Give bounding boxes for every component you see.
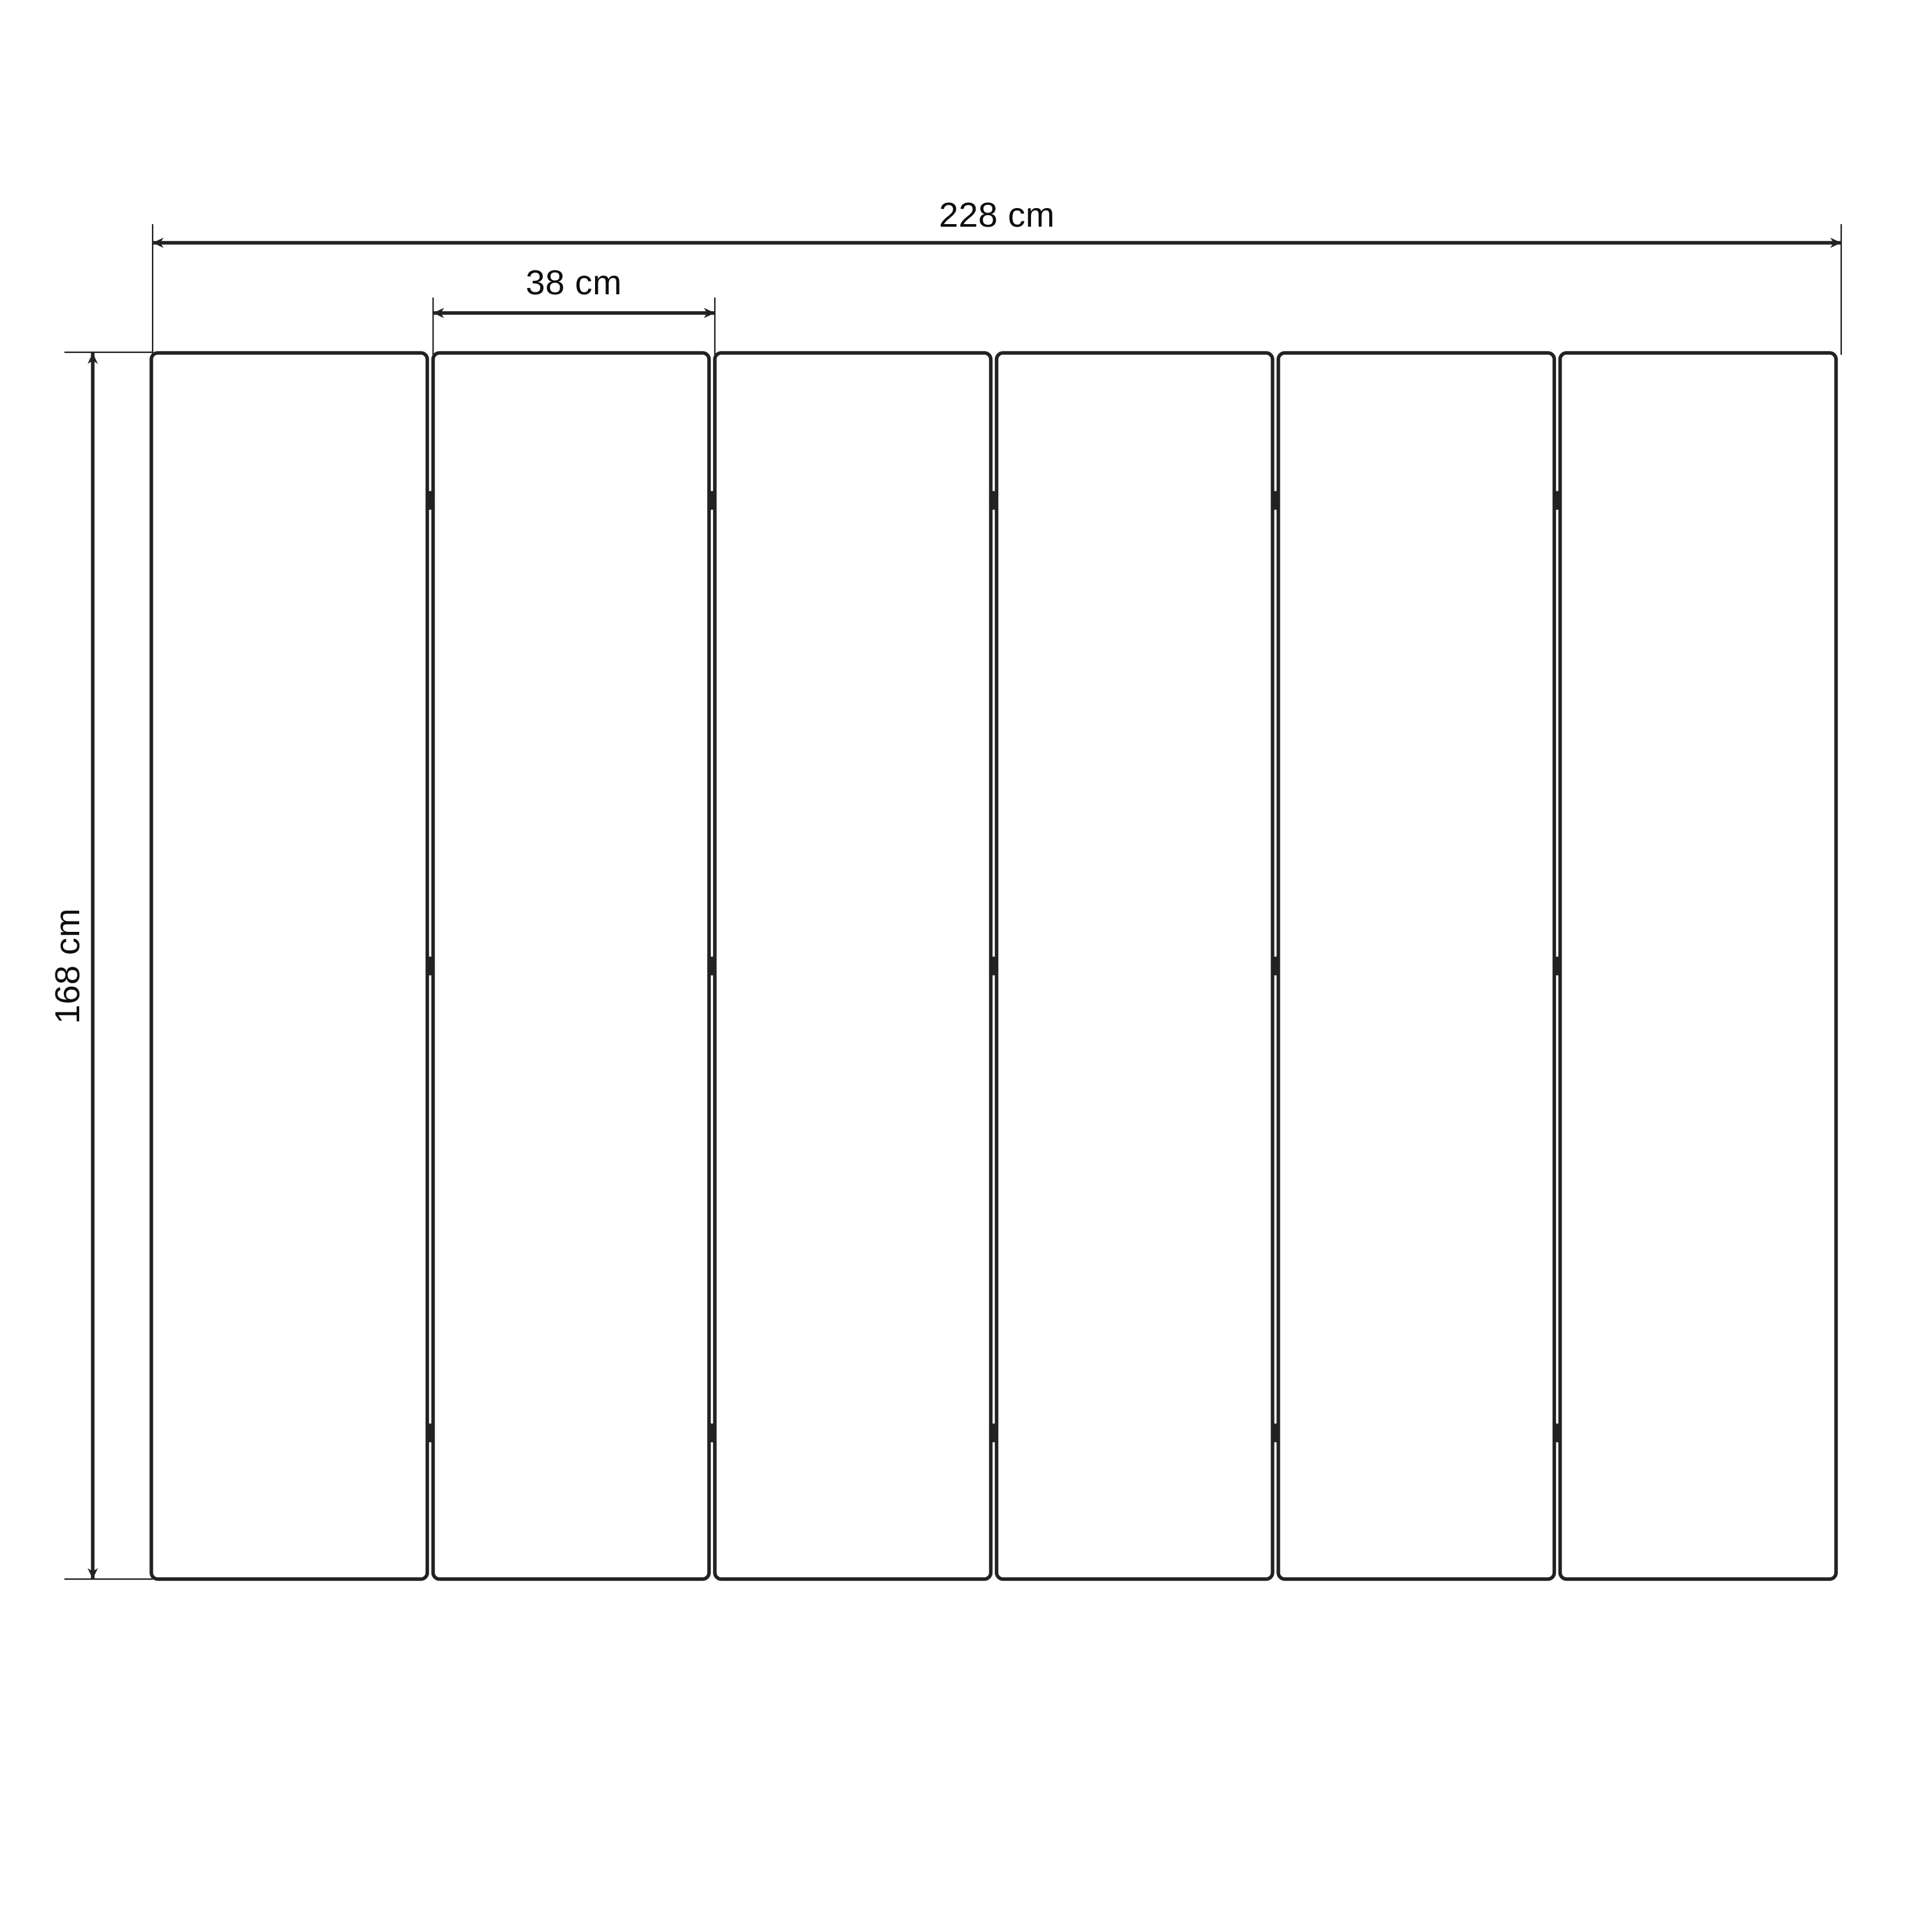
panel — [715, 353, 991, 1579]
panel — [151, 353, 428, 1579]
total-width-label: 228 cm — [939, 196, 1055, 234]
hinge — [1271, 957, 1280, 976]
hinge — [1553, 957, 1562, 976]
hinge — [990, 491, 998, 510]
hinge — [1271, 491, 1280, 510]
hinge — [426, 491, 435, 510]
hinge — [708, 1424, 716, 1443]
panel-screen-dimension-diagram: 228 cm 38 cm 168 cm — [0, 0, 1932, 1932]
panel — [1560, 353, 1837, 1579]
hinge — [1271, 1424, 1280, 1443]
hinge — [426, 1424, 435, 1443]
total-width-dimension: 228 cm — [153, 196, 1841, 355]
panels-group — [151, 353, 1836, 1579]
panel — [433, 353, 710, 1579]
hinge — [708, 957, 716, 976]
hinge — [1553, 491, 1562, 510]
hinge — [1553, 1424, 1562, 1443]
panel — [1278, 353, 1555, 1579]
panel — [997, 353, 1273, 1579]
panel-width-dimension: 38 cm — [433, 263, 715, 355]
hinge — [708, 491, 716, 510]
hinge — [426, 957, 435, 976]
hinge — [990, 1424, 998, 1443]
hinge — [990, 957, 998, 976]
height-label: 168 cm — [48, 908, 87, 1024]
panel-width-label: 38 cm — [526, 263, 622, 302]
height-dimension: 168 cm — [48, 352, 153, 1579]
